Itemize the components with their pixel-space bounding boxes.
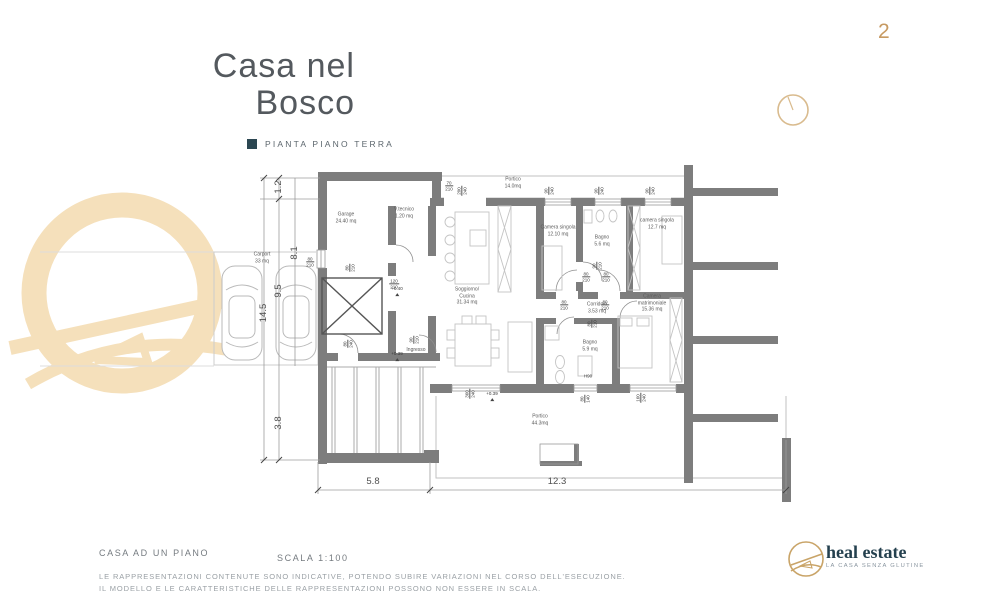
brand-logo-icon bbox=[0, 0, 1000, 600]
brand-wordmark: heal estate LA CASA SENZA GLUTINE bbox=[826, 543, 925, 569]
brand-tagline: LA CASA SENZA GLUTINE bbox=[826, 563, 925, 569]
presentation-slide: Casa nel Bosco PIANTA PIANO TERRA 2 Gara… bbox=[0, 0, 1000, 600]
brand-name: heal estate bbox=[826, 543, 925, 561]
